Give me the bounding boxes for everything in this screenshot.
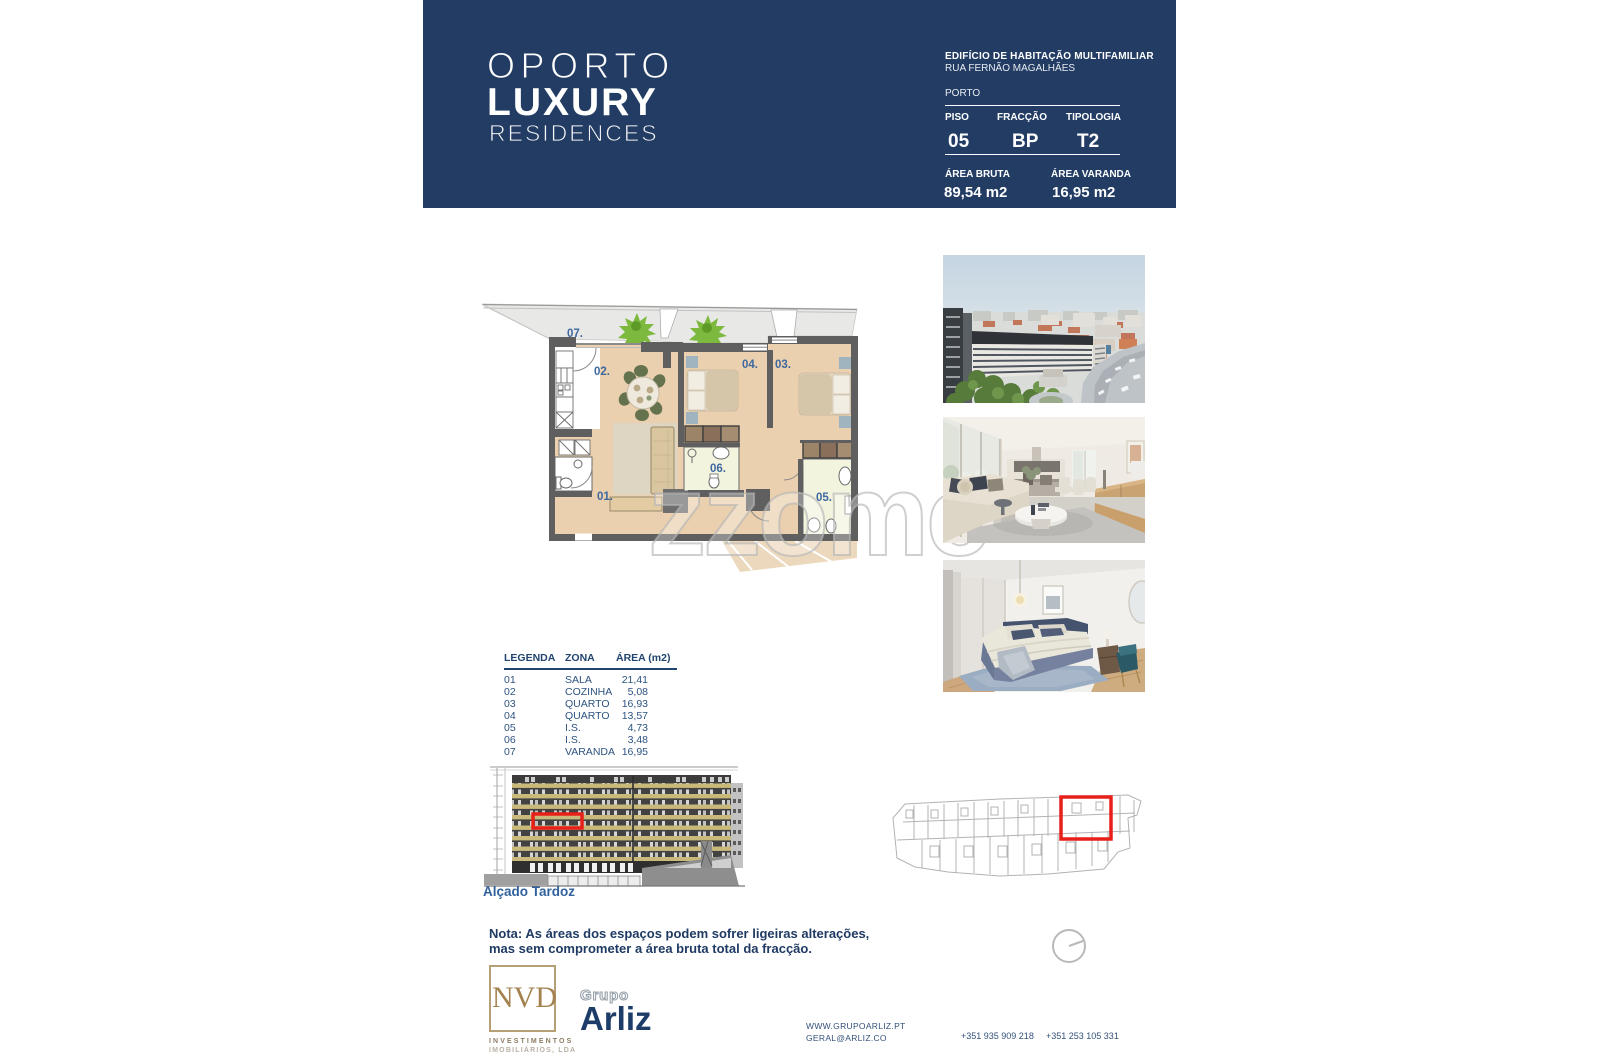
svg-text:04.: 04.	[742, 359, 758, 371]
svg-text:07.: 07.	[567, 328, 583, 340]
svg-text:01.: 01.	[597, 491, 613, 503]
svg-text:02.: 02.	[594, 366, 610, 378]
svg-text:03.: 03.	[775, 359, 791, 371]
